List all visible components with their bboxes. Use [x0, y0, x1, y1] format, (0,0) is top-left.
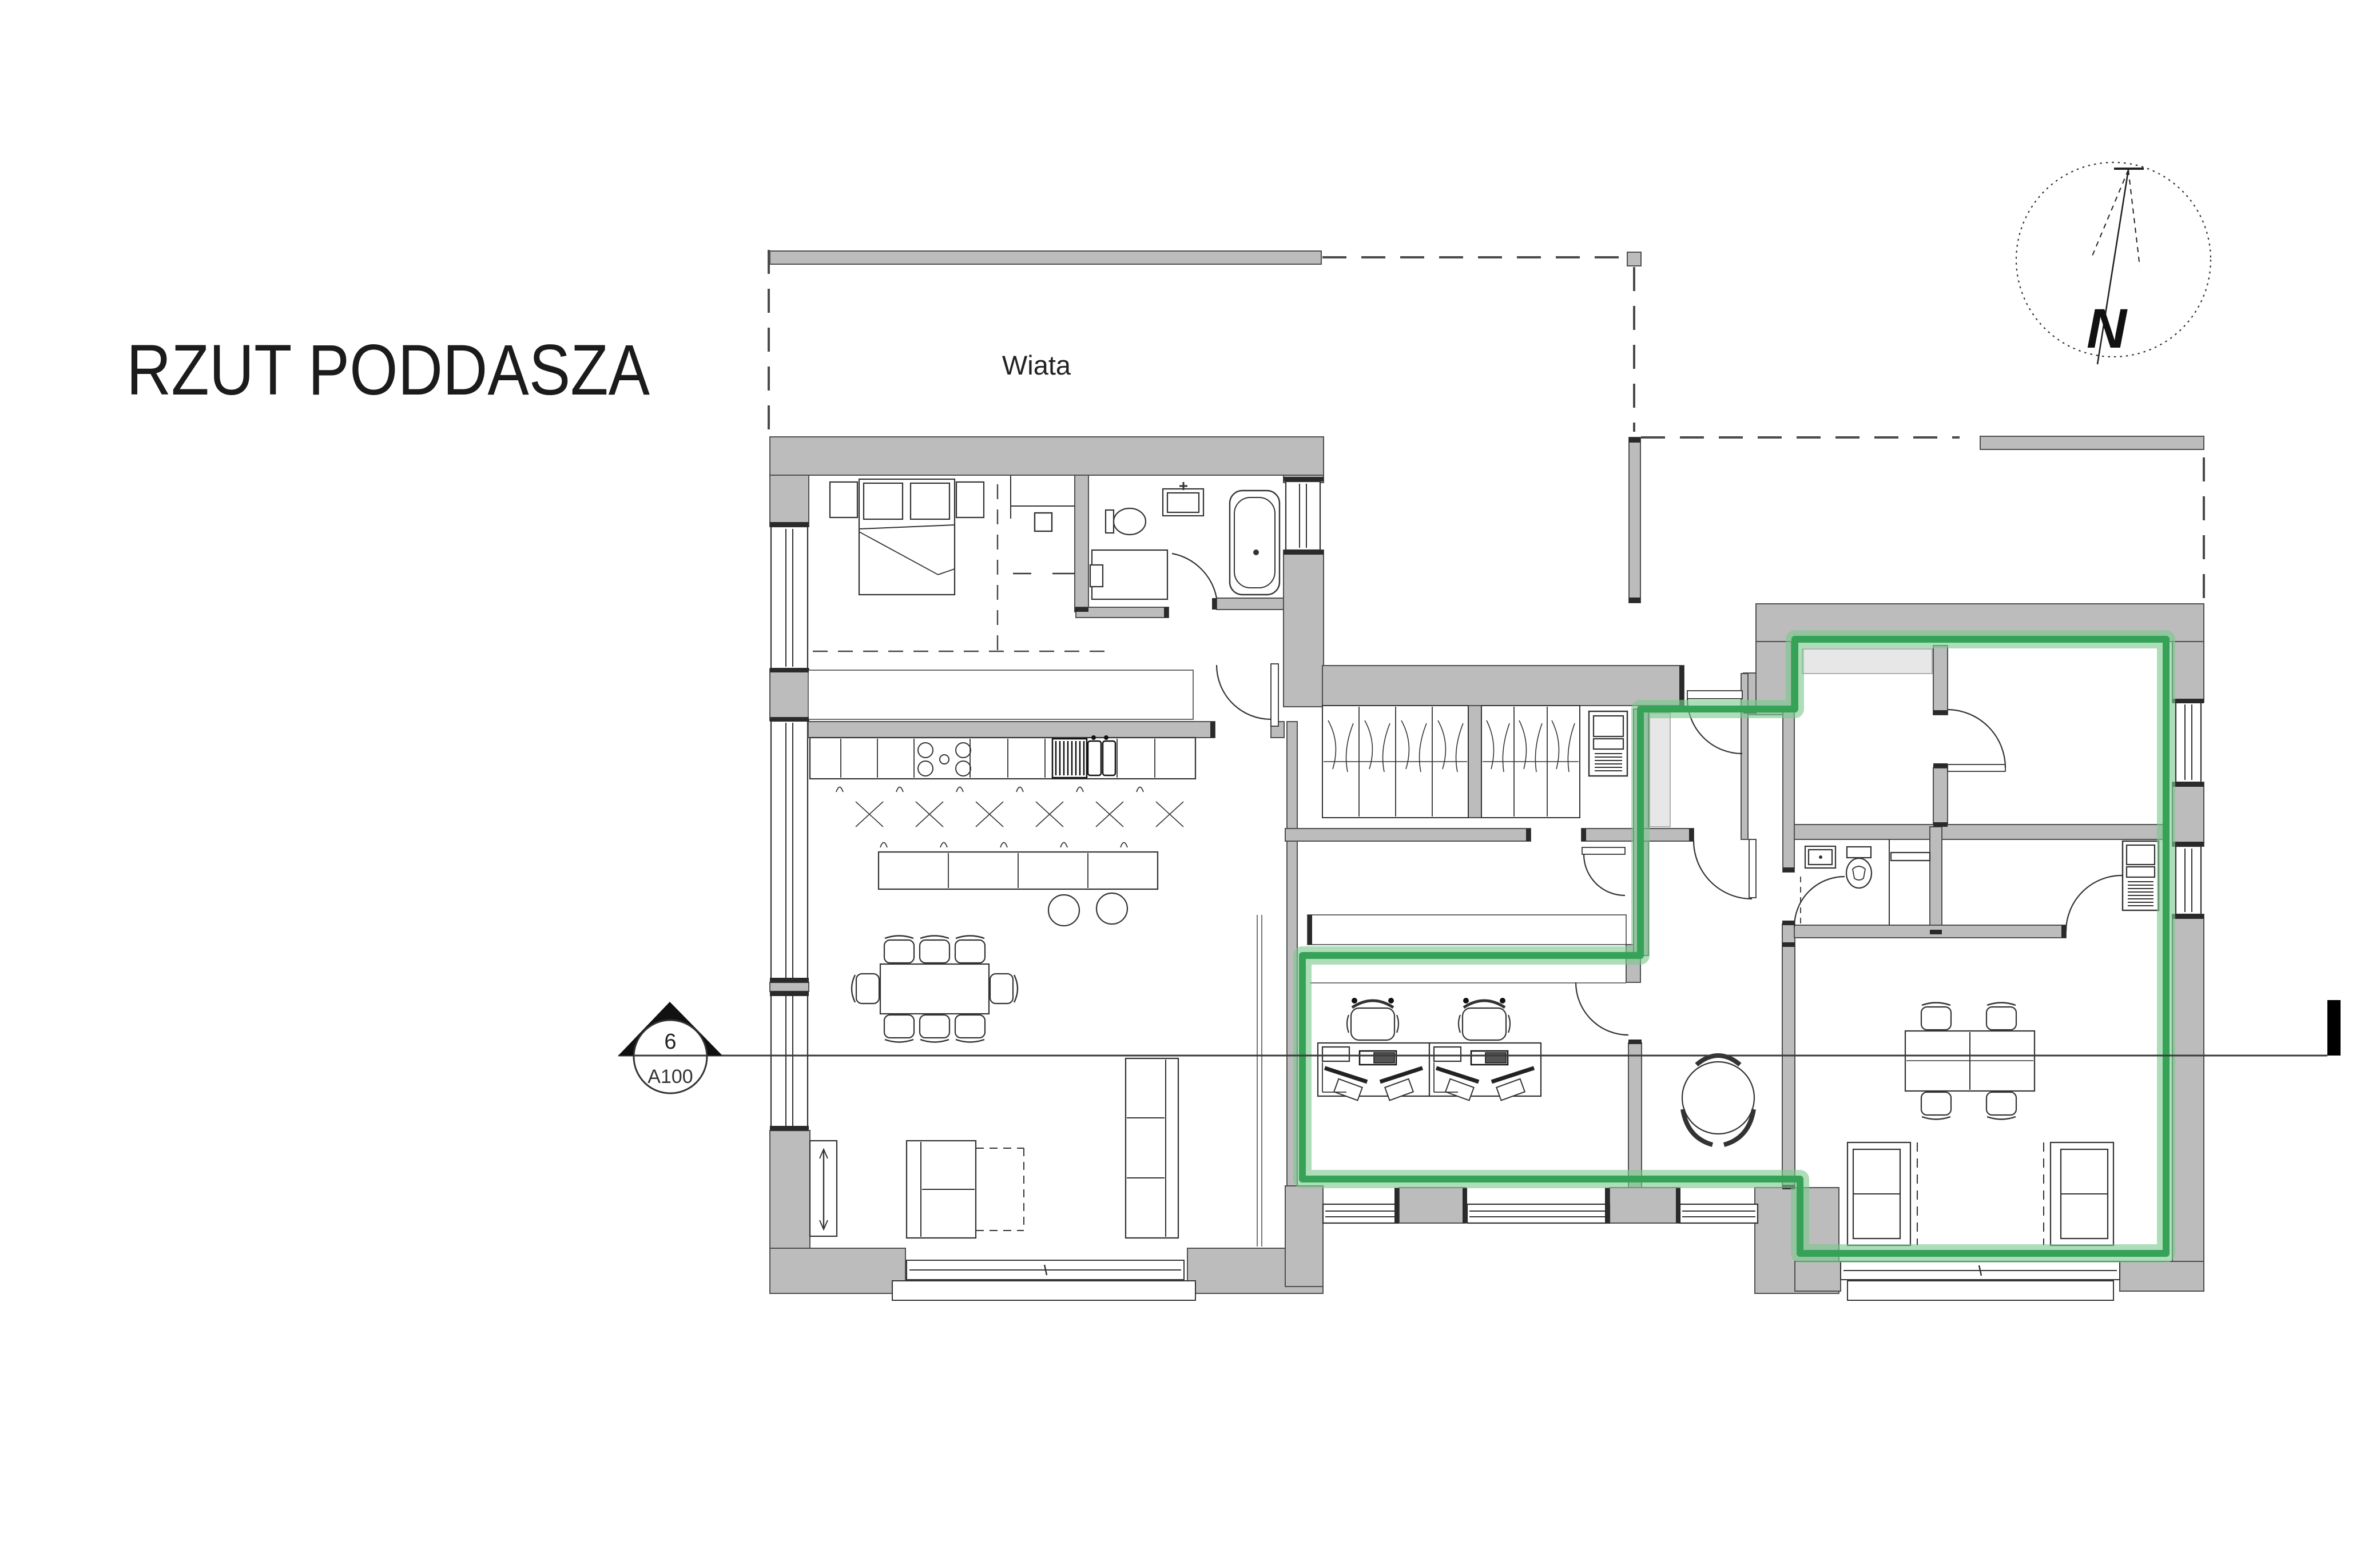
svg-text:6: 6 — [664, 1030, 676, 1054]
svg-text:RZUT PODDASZA: RZUT PODDASZA — [126, 330, 650, 410]
svg-text:Wiata: Wiata — [1002, 350, 1071, 380]
svg-text:N: N — [2087, 297, 2128, 360]
svg-text:A100: A100 — [647, 1066, 693, 1088]
